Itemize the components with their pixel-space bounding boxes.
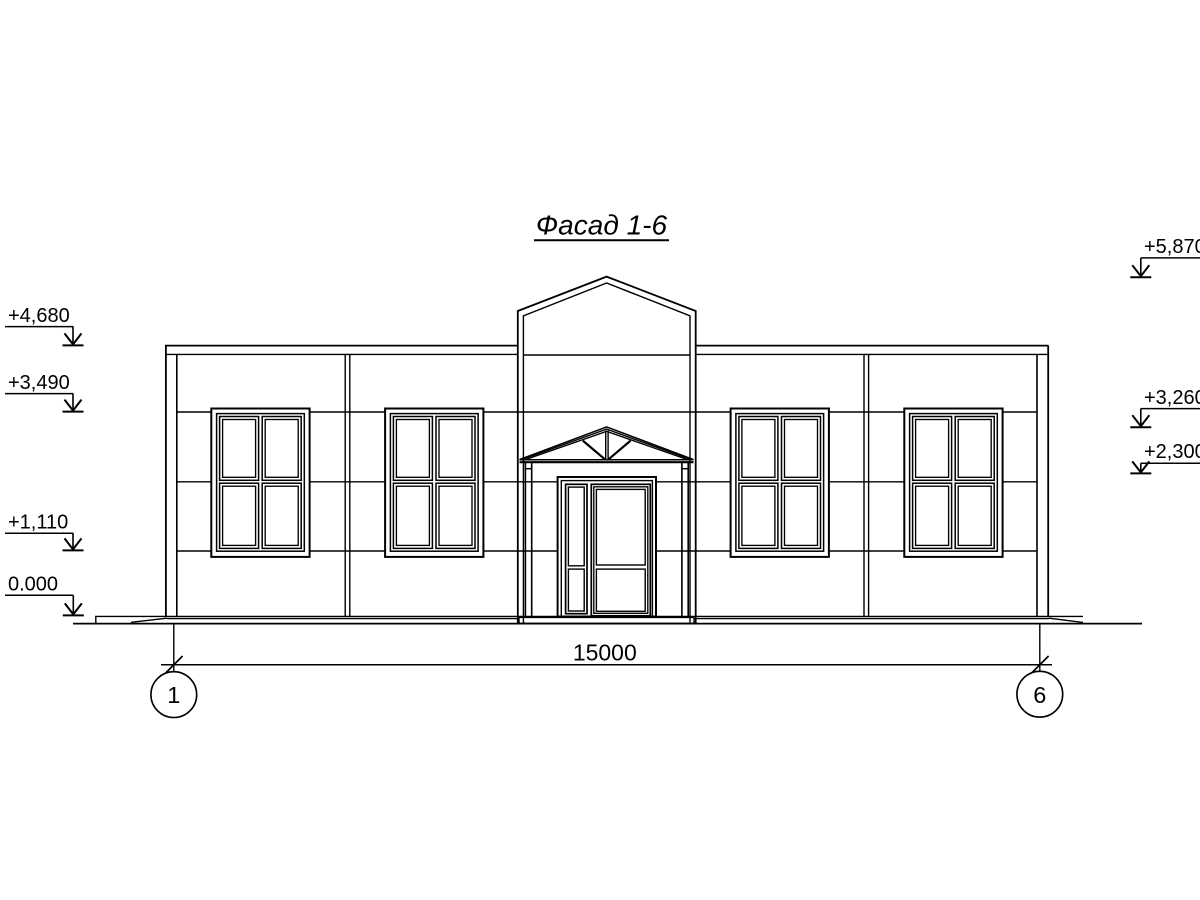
svg-text:+3,490: +3,490 [8, 372, 70, 394]
svg-text:0.000: 0.000 [8, 574, 58, 596]
svg-text:+4,680: +4,680 [8, 305, 70, 327]
svg-text:+5,870: +5,870 [1144, 236, 1200, 258]
svg-text:+2,300: +2,300 [1144, 441, 1200, 463]
svg-text:1: 1 [167, 682, 180, 708]
svg-text:6: 6 [1033, 682, 1046, 708]
svg-text:+3,260: +3,260 [1144, 387, 1200, 409]
svg-text:Фасад 1-6: Фасад 1-6 [536, 209, 668, 240]
svg-text:+1,110: +1,110 [8, 511, 68, 533]
svg-text:15000: 15000 [573, 640, 637, 666]
